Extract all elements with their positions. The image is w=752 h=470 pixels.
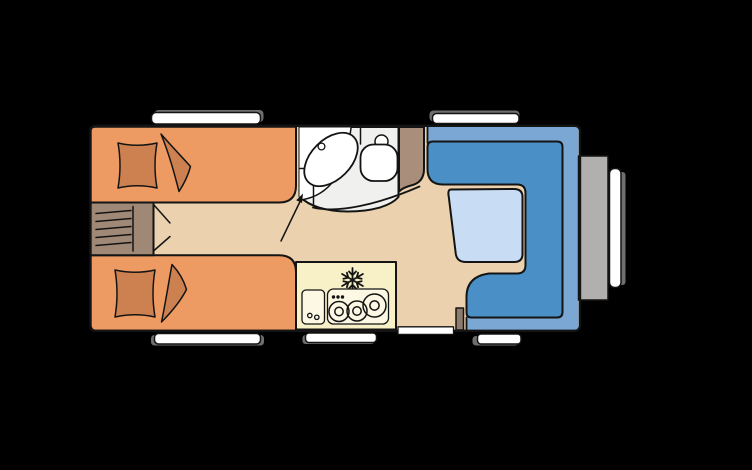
front-storage-box [579, 156, 609, 300]
toilet-bowl [361, 145, 398, 182]
washroom [294, 123, 398, 212]
floorplan-canvas [0, 0, 752, 470]
pillow-top [118, 143, 157, 188]
dinette-base-right [562, 127, 579, 331]
window-bottom-kitchen [306, 333, 377, 343]
seat-end-post [456, 308, 464, 330]
sink-drain-icon [318, 143, 325, 150]
window-bottom-left [155, 334, 261, 345]
window-top-right [433, 114, 520, 124]
window-top-left [152, 113, 261, 125]
stove-knob-dots [332, 295, 344, 298]
window-front-vertical [610, 169, 622, 288]
kitchen [296, 262, 396, 330]
window-bottom-right [478, 334, 522, 344]
pillow-bottom [115, 270, 155, 317]
entry-door [398, 327, 454, 335]
caravan-floorplan [0, 0, 752, 470]
wardrobe [399, 127, 424, 192]
kitchen-sink-unit [302, 290, 325, 324]
dinette-table [448, 189, 522, 262]
